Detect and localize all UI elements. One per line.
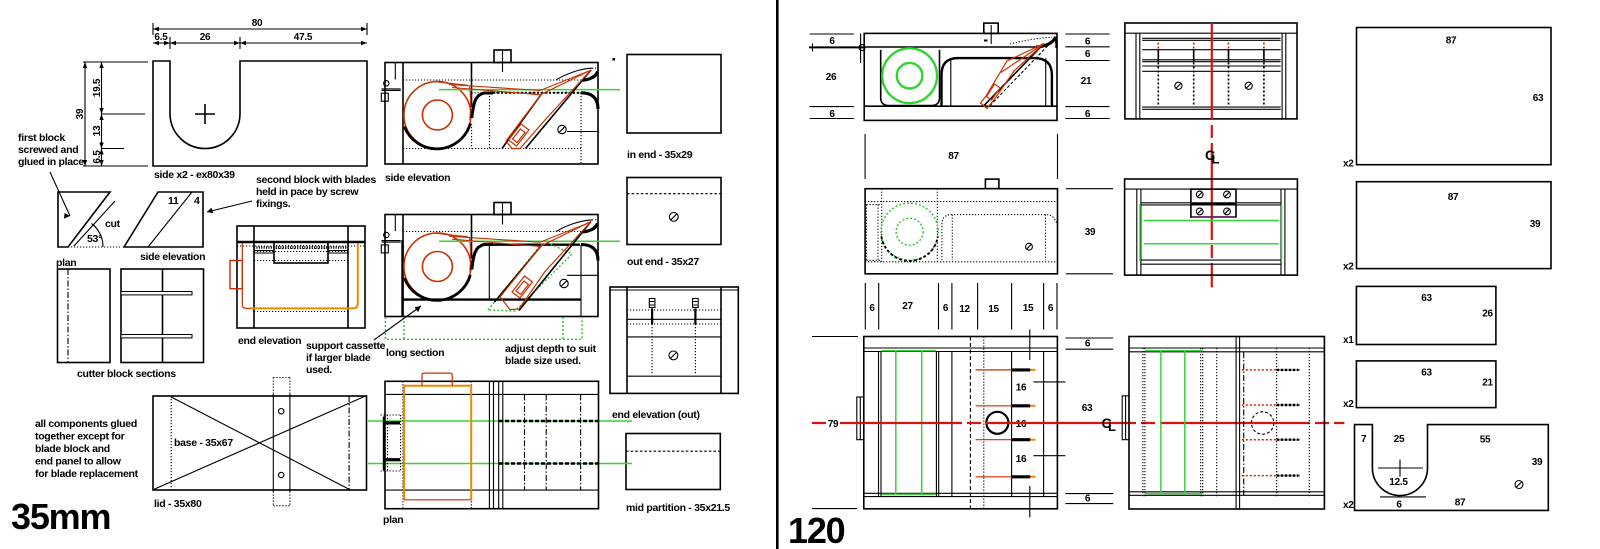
svg-text:26: 26 (1482, 309, 1493, 320)
svg-text:39: 39 (1085, 227, 1096, 238)
svg-text:120: 120 (788, 510, 845, 549)
svg-text:6.5: 6.5 (154, 32, 168, 43)
svg-text:L: L (1108, 419, 1116, 434)
svg-text:x1: x1 (1343, 335, 1354, 346)
svg-text:39: 39 (1532, 457, 1543, 468)
svg-text:19.5: 19.5 (92, 78, 103, 97)
svg-text:21: 21 (1482, 378, 1493, 389)
svg-text:side elevation: side elevation (140, 251, 205, 263)
svg-text:6: 6 (869, 303, 875, 314)
svg-text:x2: x2 (1343, 500, 1354, 511)
svg-text:x2: x2 (1343, 399, 1354, 410)
svg-text:16: 16 (1016, 383, 1027, 394)
svg-text:7: 7 (1361, 434, 1367, 445)
svg-text:support cassette: support cassette (306, 340, 386, 352)
svg-text:6: 6 (829, 109, 835, 120)
svg-text:6: 6 (1085, 109, 1091, 120)
svg-text:glued in place: glued in place (18, 156, 84, 168)
svg-text:lid - 35x80: lid - 35x80 (154, 498, 202, 510)
svg-text:12: 12 (959, 304, 970, 315)
svg-text:second block with blades: second block with blades (256, 174, 376, 186)
svg-text:63: 63 (1421, 293, 1432, 304)
svg-text:47.5: 47.5 (294, 32, 313, 43)
svg-text:87: 87 (948, 151, 959, 162)
svg-text:6: 6 (1085, 339, 1091, 350)
svg-text:13: 13 (92, 125, 103, 136)
svg-text:87: 87 (1455, 498, 1466, 509)
svg-text:15: 15 (1023, 303, 1034, 314)
svg-text:6: 6 (943, 303, 949, 314)
svg-text:6.5: 6.5 (92, 150, 103, 164)
svg-text:6: 6 (829, 36, 835, 47)
svg-text:together except for: together except for (35, 431, 125, 443)
svg-text:plan: plan (56, 257, 76, 269)
svg-text:base - 35x67: base - 35x67 (174, 437, 233, 449)
svg-text:x2: x2 (1343, 262, 1354, 273)
svg-text:87: 87 (1446, 36, 1457, 47)
svg-text:if larger blade: if larger blade (306, 352, 371, 364)
svg-text:6: 6 (1085, 494, 1091, 505)
svg-text:4: 4 (194, 195, 200, 207)
svg-text:39: 39 (1530, 219, 1541, 230)
svg-text:55: 55 (1480, 435, 1491, 446)
svg-text:26: 26 (200, 32, 211, 43)
svg-text:80: 80 (252, 18, 263, 29)
svg-text:6: 6 (1085, 37, 1091, 48)
svg-text:87: 87 (1448, 192, 1459, 203)
svg-text:in end - 35x29: in end - 35x29 (627, 149, 693, 161)
svg-text:plan: plan (383, 514, 403, 526)
svg-text:long section: long section (386, 347, 444, 359)
svg-text:39: 39 (75, 108, 86, 119)
svg-text:16: 16 (1016, 454, 1027, 465)
svg-text:first block: first block (18, 132, 65, 144)
svg-text:63: 63 (1533, 93, 1544, 104)
svg-text:end elevation: end elevation (238, 335, 301, 347)
svg-text:blade size used.: blade size used. (505, 355, 581, 367)
svg-text:side elevation: side elevation (385, 172, 450, 184)
svg-text:12.5: 12.5 (1389, 477, 1408, 488)
svg-text:16: 16 (1016, 419, 1027, 430)
svg-text:blade block and: blade block and (35, 443, 110, 455)
svg-text:adjust depth to suit: adjust depth to suit (505, 343, 597, 355)
svg-text:cut: cut (105, 218, 121, 230)
svg-text:end elevation (out): end elevation (out) (612, 409, 700, 421)
svg-text:11: 11 (168, 195, 179, 207)
svg-text:screwed and: screwed and (18, 144, 78, 156)
svg-text:6: 6 (1048, 303, 1054, 314)
svg-text:6: 6 (1085, 49, 1091, 60)
svg-text:25: 25 (1394, 434, 1405, 445)
svg-text:63: 63 (1421, 368, 1432, 379)
svg-text:21: 21 (1081, 76, 1092, 87)
svg-text:6: 6 (1396, 500, 1402, 511)
svg-text:out end - 35x27: out end - 35x27 (627, 256, 699, 268)
svg-text:held in pace by screw: held in pace by screw (256, 186, 359, 198)
svg-text:63: 63 (1082, 403, 1093, 414)
svg-text:mid partition - 35x21.5: mid partition - 35x21.5 (626, 502, 730, 514)
svg-text:L: L (1212, 152, 1220, 167)
svg-text:35mm: 35mm (11, 496, 110, 537)
svg-text:26: 26 (826, 72, 837, 83)
svg-text:for blade replacement: for blade replacement (35, 468, 139, 480)
svg-text:x2: x2 (1343, 159, 1354, 170)
svg-text:used.: used. (306, 364, 332, 376)
svg-text:53°: 53° (87, 233, 102, 245)
svg-text:fixings.: fixings. (256, 198, 291, 210)
svg-text:end panel to allow: end panel to allow (35, 456, 122, 468)
svg-text:all components glued: all components glued (35, 418, 137, 430)
svg-text:79: 79 (828, 419, 839, 430)
svg-text:cutter block sections: cutter block sections (77, 368, 176, 380)
svg-text:15: 15 (988, 304, 999, 315)
svg-text:27: 27 (902, 301, 913, 312)
svg-text:side x2 - ex80x39: side x2 - ex80x39 (154, 169, 235, 181)
